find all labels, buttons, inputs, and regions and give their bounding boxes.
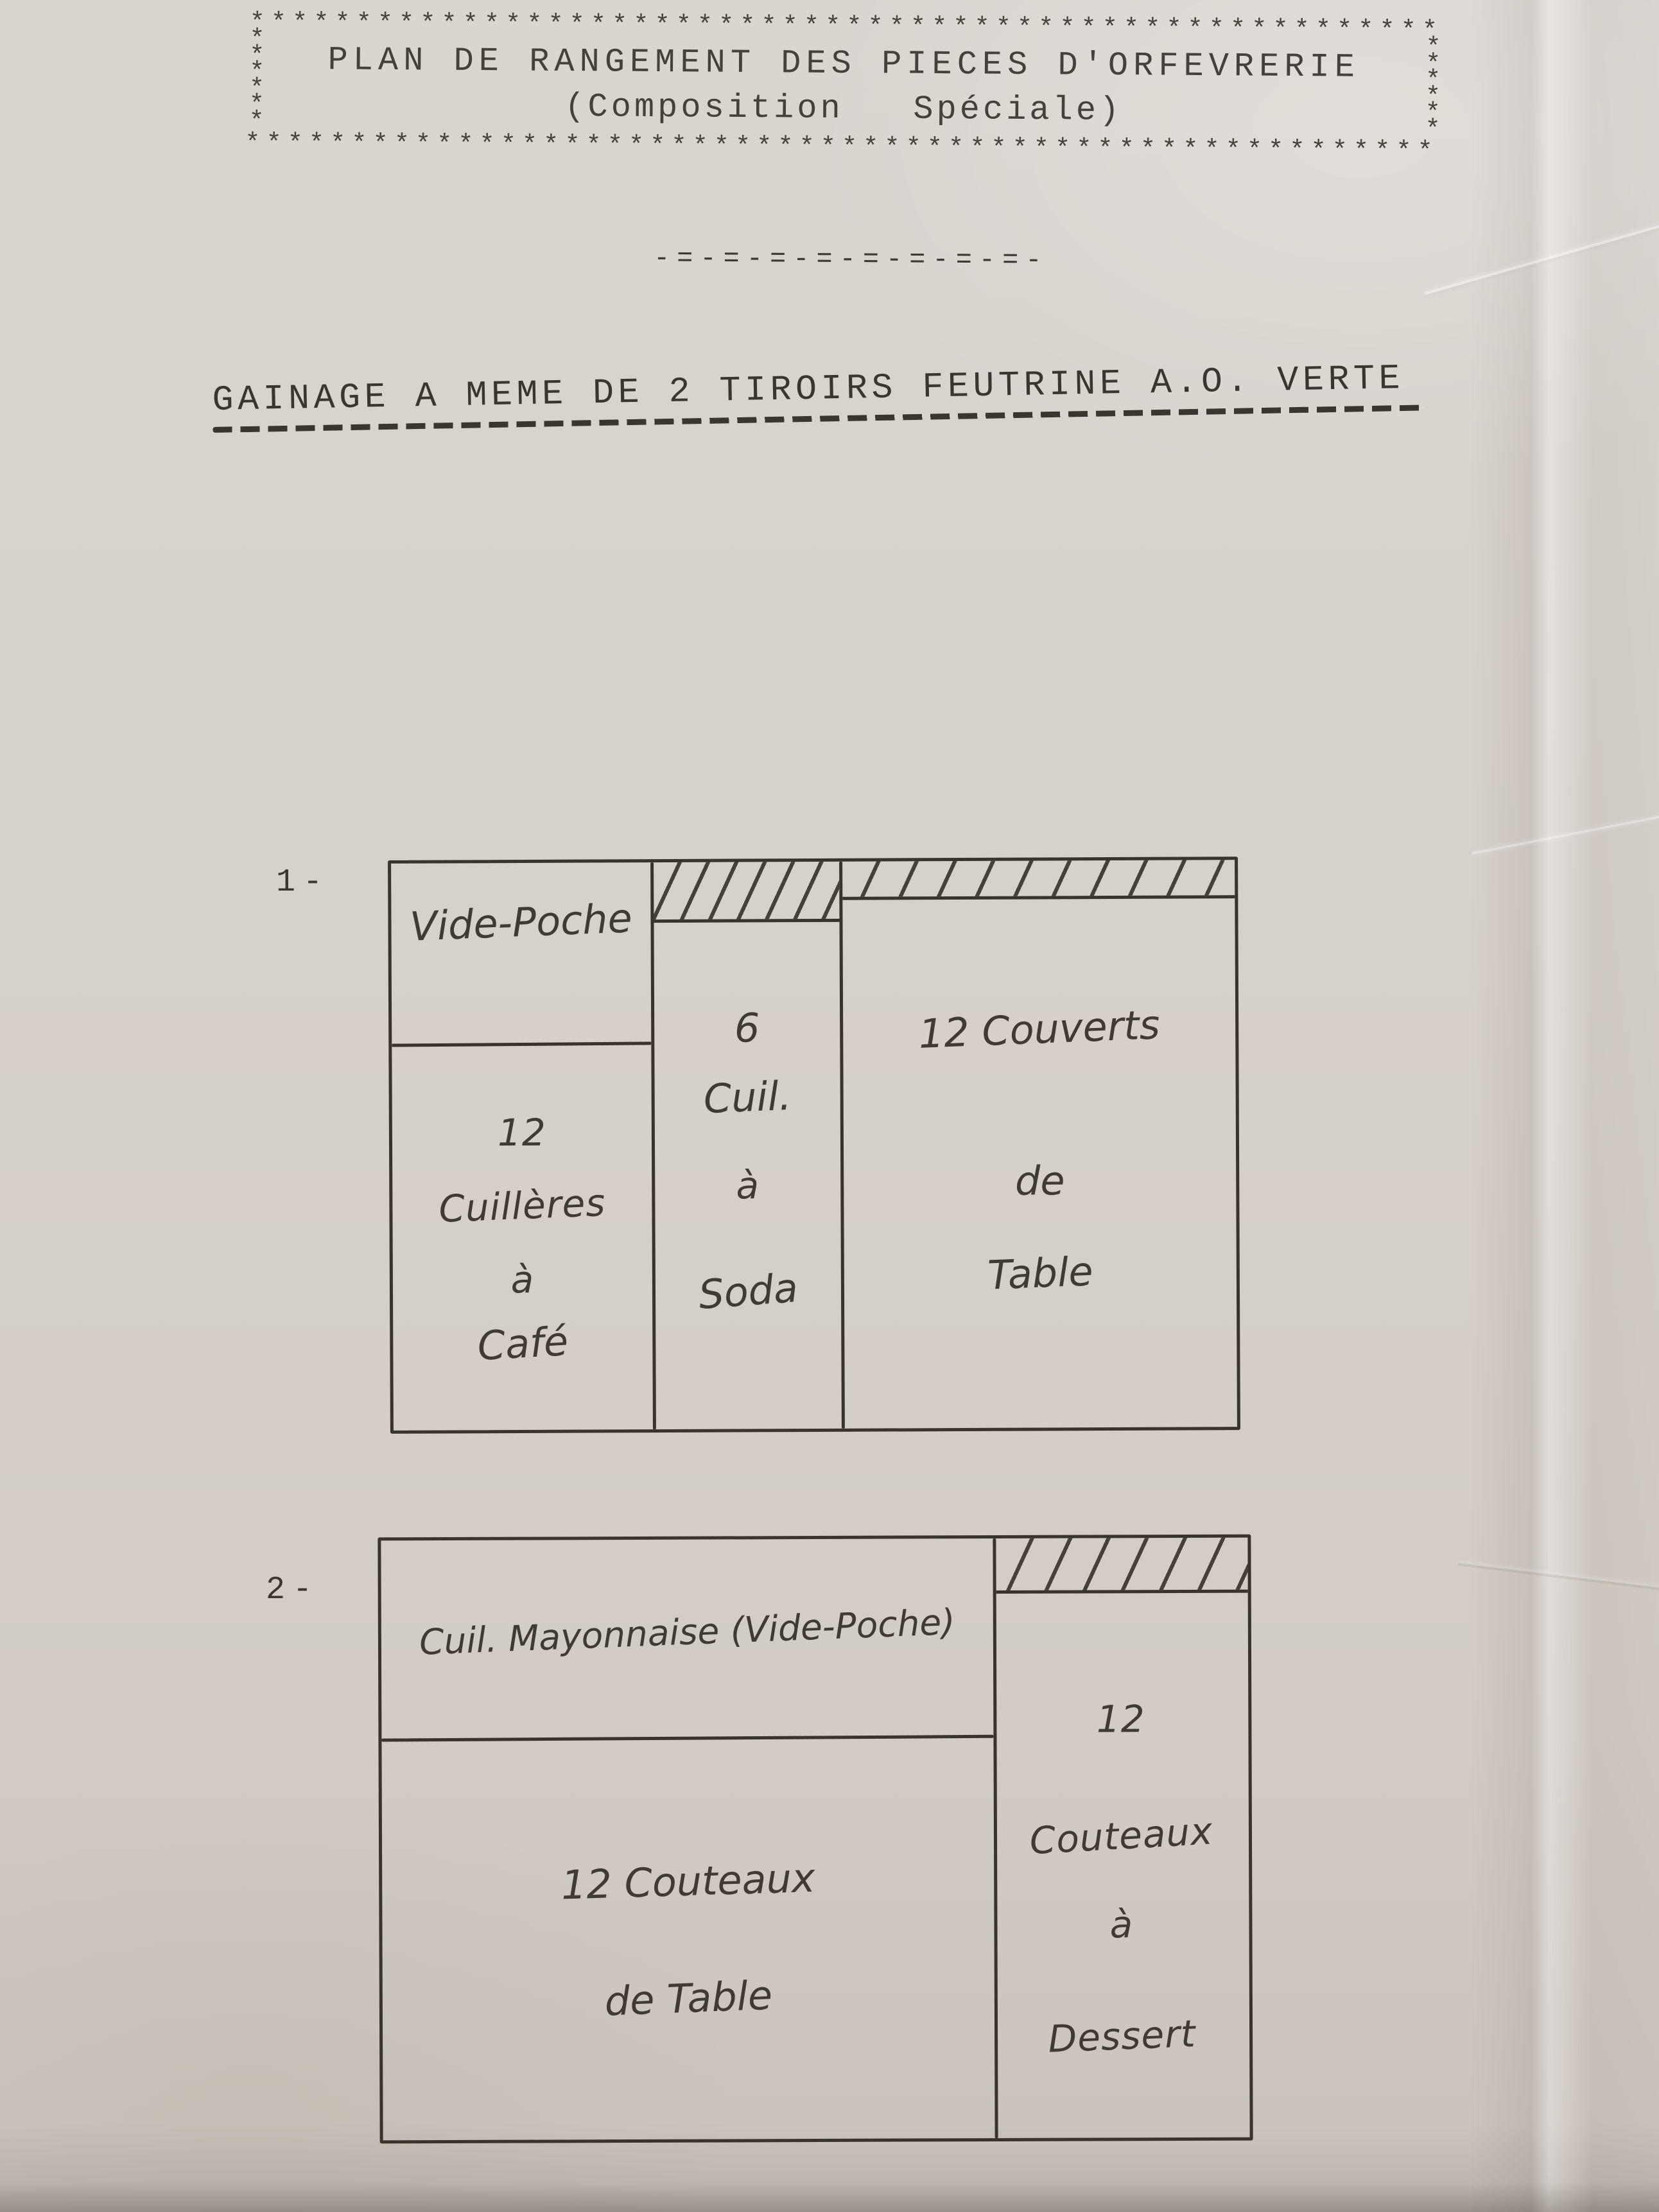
section-heading-group: GAINAGE A MEME DE 2 TIROIRS FEUTRINE A.O…: [212, 358, 1439, 433]
compartment-soda-word-1: Cuil.: [650, 1070, 844, 1125]
compartment-soda-word-3: Soda: [651, 1260, 846, 1321]
compartment-cafe-word-2: à: [393, 1257, 652, 1302]
document-subtitle: (Composition Spéciale): [236, 85, 1451, 132]
compartment-cafe-word-1: Cuillères: [392, 1179, 652, 1233]
compartment-couteaux-table-line-1: 12 Couteaux: [381, 1849, 995, 1914]
compartment-cafe-qty: 12: [392, 1110, 652, 1155]
drawer-1-label: 1-: [276, 864, 330, 901]
paper-crease-top-right: [1424, 211, 1659, 295]
drawer-1-divider-vertical-2: [839, 862, 845, 1429]
paper-edge-shadow: [0, 2182, 1659, 2212]
scanned-document-page: ****************************************…: [0, 0, 1659, 2212]
compartment-couverts-line-3: Table: [844, 1242, 1237, 1304]
compartment-couverts-line-2: de: [844, 1156, 1236, 1205]
paper-crease-mid-right: [1472, 812, 1659, 855]
compartment-mayonnaise-label: Cuil. Mayonnaise (Vide-Poche): [381, 1599, 994, 1664]
drawer-1-hatch-middle: [654, 862, 839, 923]
drawer-1-diagram: Vide-Poche 12 Cuillères à Café 6 Cuil. à…: [388, 857, 1240, 1434]
compartment-dessert-line-2: Couteaux: [993, 1807, 1249, 1865]
drawer-2-hatch-right: [996, 1538, 1247, 1594]
compartment-soda-word-2: à: [652, 1163, 844, 1208]
compartment-soda-qty: 6: [651, 1004, 843, 1052]
compartment-dessert-line-4: Dessert: [994, 2010, 1250, 2063]
drawer-2-label: 2-: [266, 1572, 320, 1608]
compartment-cafe-word-3: Café: [392, 1313, 654, 1375]
header-box: ****************************************…: [236, 3, 1452, 171]
compartment-couverts-line-1: 12 Couverts: [842, 998, 1236, 1061]
asterisk-border-bottom: ****************************************…: [245, 129, 1439, 166]
compartment-vide-poche-label: Vide-Poche: [390, 894, 652, 951]
compartment-dessert-line-3: à: [994, 1903, 1249, 1947]
drawer-1-divider-horizontal: [392, 1041, 651, 1047]
typed-separator: -=-=-=-=-=-=-=-=-: [654, 243, 1049, 275]
document-title: PLAN DE RANGEMENT DES PIECES D'ORFEVRERI…: [236, 40, 1451, 87]
compartment-dessert-line-1: 12: [993, 1697, 1248, 1741]
drawer-2-divider-horizontal: [381, 1735, 993, 1742]
paper-crease-bottom-right: [1458, 1563, 1659, 1592]
asterisk-border-top: ****************************************…: [250, 9, 1444, 46]
drawer-1-hatch-right: [842, 860, 1235, 900]
compartment-couteaux-table-line-2: de Table: [382, 1963, 995, 2033]
drawer-2-diagram: Cuil. Mayonnaise (Vide-Poche) 12 Couteau…: [378, 1535, 1253, 2144]
